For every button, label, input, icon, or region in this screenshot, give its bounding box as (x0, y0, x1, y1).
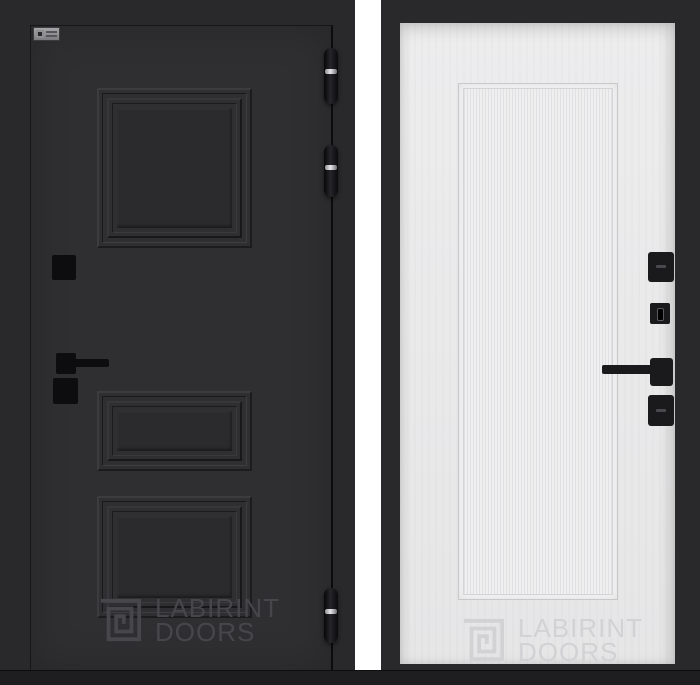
brand-logo-text-lines (46, 31, 57, 37)
square-escutcheon-top (52, 255, 76, 280)
door-product-image: LABIRINT DOORS LABIRIN (0, 0, 700, 684)
door-back-white: LABIRINT DOORS (381, 0, 700, 684)
molding-panel-middle (97, 391, 252, 471)
door-front-dark: LABIRINT DOORS (0, 0, 355, 684)
labirint-logo-icon (36, 30, 44, 38)
keyhole-plate (650, 303, 670, 324)
watermark-dark-door: LABIRINT DOORS (97, 596, 280, 644)
lever-handle (67, 359, 109, 367)
lever-handle (602, 365, 654, 374)
hinge-bottom (324, 588, 338, 643)
hinge-top (324, 48, 338, 104)
floor-shadow-strip (0, 670, 700, 685)
labirint-maze-icon (97, 597, 143, 643)
molding-panel-top (97, 88, 252, 248)
molding-center-field (117, 108, 232, 228)
recessed-ribbed-panel (458, 83, 618, 600)
lock-plate (648, 395, 674, 426)
door-leaf-front: LABIRINT DOORS (30, 25, 333, 672)
molding-center-field (117, 411, 232, 451)
thumbturn-plate (648, 252, 674, 282)
watermark-text: LABIRINT DOORS (518, 616, 643, 664)
door-leaf-back: LABIRINT DOORS (400, 23, 675, 664)
square-escutcheon-bottom (53, 378, 78, 404)
watermark-white-door: LABIRINT DOORS (460, 616, 643, 664)
labirint-maze-icon (460, 617, 506, 663)
brand-logo-plate (33, 27, 60, 41)
watermark-line2: DOORS (518, 640, 643, 664)
watermark-text: LABIRINT DOORS (155, 596, 280, 644)
watermark-line2: DOORS (155, 620, 280, 644)
hinge-middle (324, 145, 338, 197)
molding-center-field (117, 516, 232, 598)
vertical-rib-texture (463, 88, 613, 595)
